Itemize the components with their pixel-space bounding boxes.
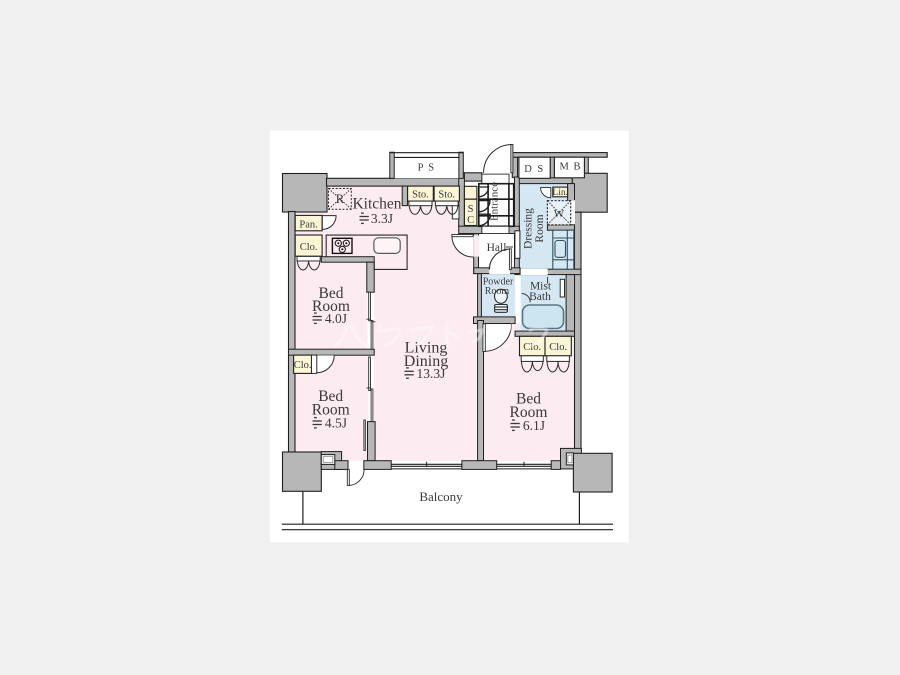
svg-text:6.1J: 6.1J [523, 418, 545, 433]
svg-text:Sto.: Sto. [438, 190, 455, 201]
svg-text:Entrance: Entrance [489, 182, 501, 221]
svg-text:Pan.: Pan. [299, 219, 317, 230]
svg-text:13.3J: 13.3J [417, 366, 446, 381]
svg-text:4.5J: 4.5J [325, 416, 347, 431]
svg-text:S: S [468, 204, 474, 215]
svg-text:Lin.: Lin. [552, 188, 568, 198]
svg-text:3.3J: 3.3J [371, 211, 393, 226]
svg-text:Dressing: Dressing [523, 208, 535, 249]
svg-text:4.0J: 4.0J [325, 311, 347, 326]
svg-text:Clo.: Clo. [294, 360, 312, 371]
svg-text:Clo.: Clo. [300, 242, 318, 253]
svg-text:R: R [336, 192, 345, 206]
svg-text:Clo.: Clo. [549, 342, 567, 353]
svg-text:D S: D S [524, 164, 545, 175]
svg-text:Room: Room [534, 214, 546, 242]
svg-text:P S: P S [418, 163, 436, 174]
svg-text:Balcony: Balcony [419, 489, 463, 504]
svg-text:M B: M B [560, 161, 582, 172]
svg-text:Hall: Hall [487, 242, 507, 254]
svg-text:Sto.: Sto. [412, 190, 429, 201]
svg-text:Bath: Bath [529, 291, 551, 303]
svg-text:W: W [554, 208, 565, 220]
svg-text:Room: Room [485, 286, 510, 297]
svg-text:Kitchen: Kitchen [352, 196, 401, 213]
svg-text:C: C [467, 215, 474, 226]
